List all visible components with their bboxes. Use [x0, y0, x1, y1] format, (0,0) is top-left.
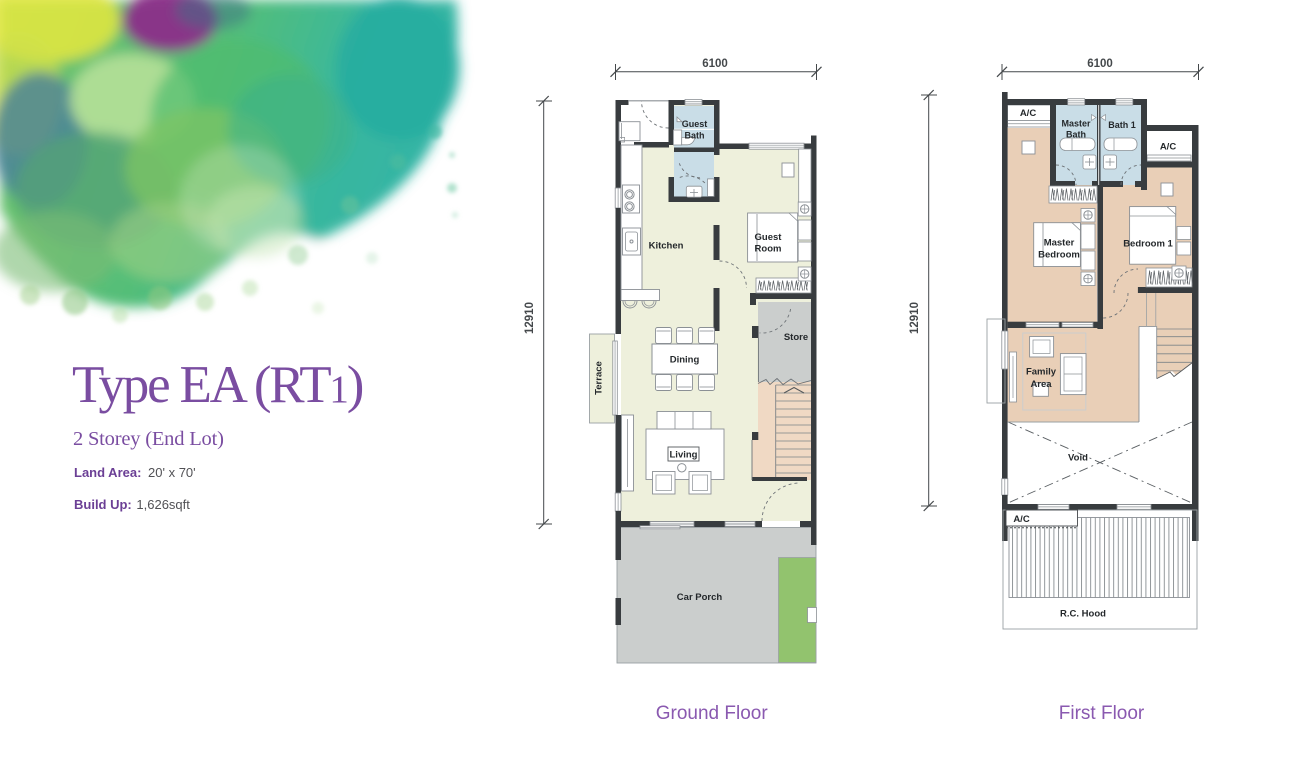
svg-text:12910: 12910 [524, 302, 536, 334]
svg-text:Family: Family [1026, 367, 1057, 378]
svg-text:R.C. Hood: R.C. Hood [1060, 609, 1106, 620]
svg-text:Land Area: 20' x 70': Land Area: 20' x 70' [74, 465, 196, 480]
svg-text:Ground Floor: Ground Floor [656, 703, 769, 724]
svg-text:Bath: Bath [685, 131, 705, 141]
svg-text:Void: Void [1068, 453, 1088, 464]
svg-text:Master: Master [1044, 238, 1075, 249]
svg-text:Terrace: Terrace [594, 361, 605, 395]
svg-text:Bedroom 1: Bedroom 1 [1123, 239, 1173, 250]
svg-text:Bath: Bath [1066, 130, 1086, 140]
svg-text:Build Up: 1,626sqft: Build Up: 1,626sqft [74, 497, 190, 512]
svg-text:A/C: A/C [1020, 108, 1037, 119]
svg-text:Type EA (RT1): Type EA (RT1) [72, 356, 363, 414]
svg-text:Bath 1: Bath 1 [1108, 120, 1136, 130]
svg-text:Room: Room [755, 244, 782, 255]
svg-text:Master: Master [1061, 119, 1091, 129]
svg-text:6100: 6100 [1087, 58, 1113, 70]
svg-text:A/C: A/C [1160, 142, 1177, 153]
svg-text:A/C: A/C [1013, 514, 1030, 525]
svg-text:12910: 12910 [909, 302, 921, 334]
svg-text:6100: 6100 [702, 58, 728, 70]
svg-text:2 Storey (End Lot): 2 Storey (End Lot) [73, 428, 224, 450]
svg-text:Car Porch: Car Porch [677, 592, 723, 603]
svg-text:First Floor: First Floor [1059, 703, 1145, 724]
svg-text:Living: Living [670, 450, 698, 461]
svg-text:Bedroom: Bedroom [1038, 250, 1080, 261]
svg-text:Area: Area [1030, 379, 1052, 390]
svg-text:Store: Store [784, 332, 808, 343]
svg-text:Guest: Guest [755, 232, 783, 243]
svg-text:Kitchen: Kitchen [649, 241, 684, 252]
svg-text:Guest: Guest [682, 119, 708, 129]
svg-text:Dining: Dining [670, 355, 700, 366]
